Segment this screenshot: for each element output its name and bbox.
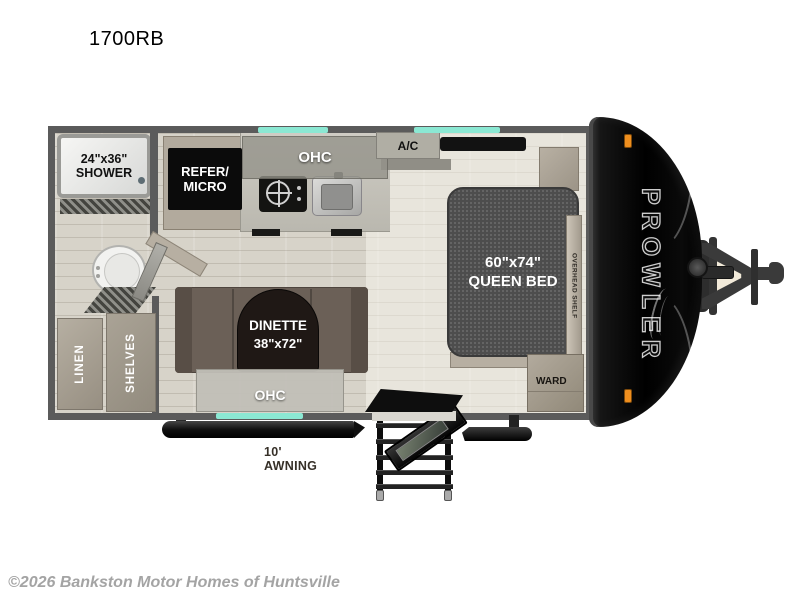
- dinette-bench-back: [351, 287, 368, 373]
- entry-door-sill: [372, 411, 456, 421]
- ac-unit: A/C: [376, 132, 440, 159]
- page-title: 1700RB: [89, 28, 164, 51]
- sink-bowl: [321, 184, 353, 210]
- counter-shadow: [331, 229, 362, 236]
- bed-size-label: 60"x74": [485, 253, 541, 272]
- wardrobe: WARD: [527, 354, 584, 412]
- bed-label: QUEEN BED: [468, 272, 557, 291]
- step-foot: [376, 490, 384, 501]
- hitch-coupler: [769, 262, 784, 284]
- floorplan-page: 1700RB 24"x36" SHOWER LINEN SHELVES: [0, 0, 800, 600]
- shower-threshold: [60, 199, 152, 214]
- step-rung: [376, 484, 453, 489]
- overhead-shelf-label: OVERHEAD SHELF: [571, 253, 578, 319]
- dinette-overhead-cabinet: OHC: [196, 369, 344, 412]
- refrigerator-microwave: REFER/ MICRO: [168, 148, 242, 210]
- dinette-label: DINETTE: [249, 318, 307, 333]
- grab-handle: [462, 427, 532, 441]
- stove-knob: [297, 186, 301, 190]
- stove-knob: [297, 197, 301, 201]
- awning-bar: [162, 421, 354, 438]
- dinette-ohc-label: OHC: [254, 387, 285, 403]
- window-accent-bottom: [216, 413, 303, 419]
- counter-shadow: [252, 229, 280, 236]
- ac-label: A/C: [398, 139, 419, 153]
- dinette-size-label: 38"x72": [254, 336, 302, 351]
- shower-label: SHOWER: [76, 166, 132, 180]
- shelves-label: SHELVES: [125, 333, 137, 393]
- step-foot: [444, 490, 452, 501]
- wardrobe-drawer-line: [528, 391, 583, 392]
- grab-handle-mount: [509, 415, 519, 428]
- toilet-hinge: [96, 266, 100, 270]
- window-accent-top-1: [258, 127, 328, 133]
- nightstand: [539, 147, 579, 191]
- linen-label: LINEN: [74, 344, 86, 384]
- shower-size-label: 24"x36": [81, 152, 128, 166]
- refer-label-line2: MICRO: [183, 179, 226, 194]
- kitchen-overhead-cabinet: OHC: [242, 136, 388, 179]
- awning-bar-tip: [354, 421, 365, 438]
- queen-bed: 60"x74" QUEEN BED: [447, 187, 579, 357]
- shower: 24"x36" SHOWER: [57, 134, 151, 198]
- toilet-hinge: [96, 274, 100, 278]
- kitchen-ohc-label: OHC: [298, 149, 331, 166]
- dinette-bench-back: [175, 287, 192, 373]
- marker-light-icon: [624, 389, 632, 403]
- ac-shelf: [381, 159, 451, 170]
- burner-spoke: [266, 192, 292, 194]
- cushion-seam: [232, 289, 234, 371]
- refer-label-line1: REFER/: [181, 164, 229, 179]
- stove-burner-icon: [259, 176, 307, 212]
- shelves-cabinet: SHELVES: [106, 313, 156, 412]
- copyright: ©2026 Bankston Motor Homes of Huntsville: [8, 574, 340, 592]
- overhead-shelf: OVERHEAD SHELF: [566, 215, 582, 357]
- window-accent-top-2: [414, 127, 500, 133]
- bed-headboard-shelf: [440, 137, 526, 151]
- sink-icon: [312, 176, 362, 216]
- dinette-table: DINETTE 38"x72": [237, 289, 319, 372]
- awning-label: 10' AWNING: [264, 445, 317, 473]
- linen-cabinet: LINEN: [57, 318, 103, 410]
- marker-light-icon: [624, 134, 632, 148]
- hitch-jack-post: [751, 249, 758, 305]
- hitch-jack-wheel: [687, 257, 708, 278]
- shower-drain-icon: [138, 177, 145, 184]
- step-rung: [376, 470, 453, 475]
- bathroom-wall-upper: [150, 133, 158, 241]
- wardrobe-label: WARD: [536, 376, 567, 387]
- toilet-lid: [104, 253, 140, 290]
- prowler-logo: PROWLER: [628, 156, 672, 396]
